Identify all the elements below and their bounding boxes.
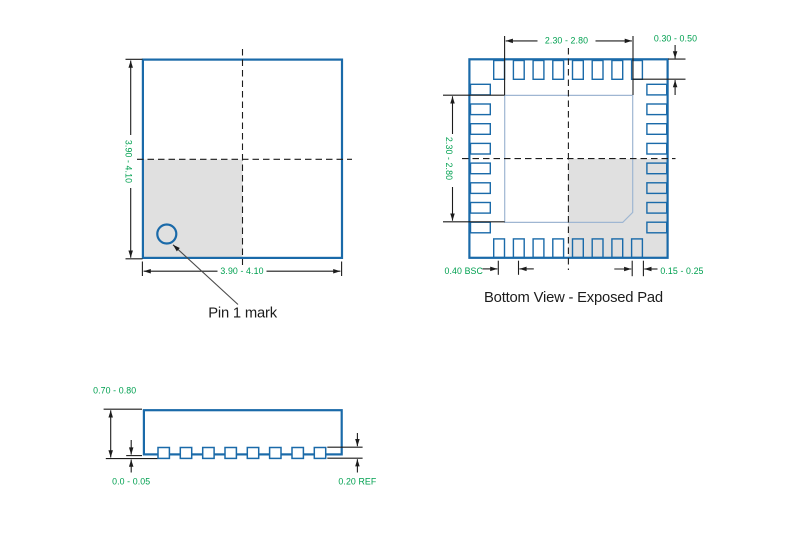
svg-text:2.30 - 2.80: 2.30 - 2.80 — [444, 137, 454, 180]
svg-text:3.90 - 4.10: 3.90 - 4.10 — [123, 140, 133, 183]
svg-text:0.15 - 0.25: 0.15 - 0.25 — [660, 266, 703, 276]
svg-text:0.20 REF: 0.20 REF — [338, 477, 376, 487]
svg-text:Pin 1 mark: Pin 1 mark — [208, 305, 278, 321]
svg-text:0.0 - 0.05: 0.0 - 0.05 — [112, 477, 150, 487]
svg-text:0.30 - 0.50: 0.30 - 0.50 — [654, 34, 697, 44]
svg-text:0.40 BSC: 0.40 BSC — [445, 266, 484, 276]
svg-text:Bottom View - Exposed Pad: Bottom View - Exposed Pad — [484, 290, 663, 306]
svg-text:3.90 - 4.10: 3.90 - 4.10 — [220, 266, 263, 276]
svg-text:0.70 - 0.80: 0.70 - 0.80 — [93, 385, 136, 395]
svg-text:2.30 - 2.80: 2.30 - 2.80 — [545, 36, 588, 46]
